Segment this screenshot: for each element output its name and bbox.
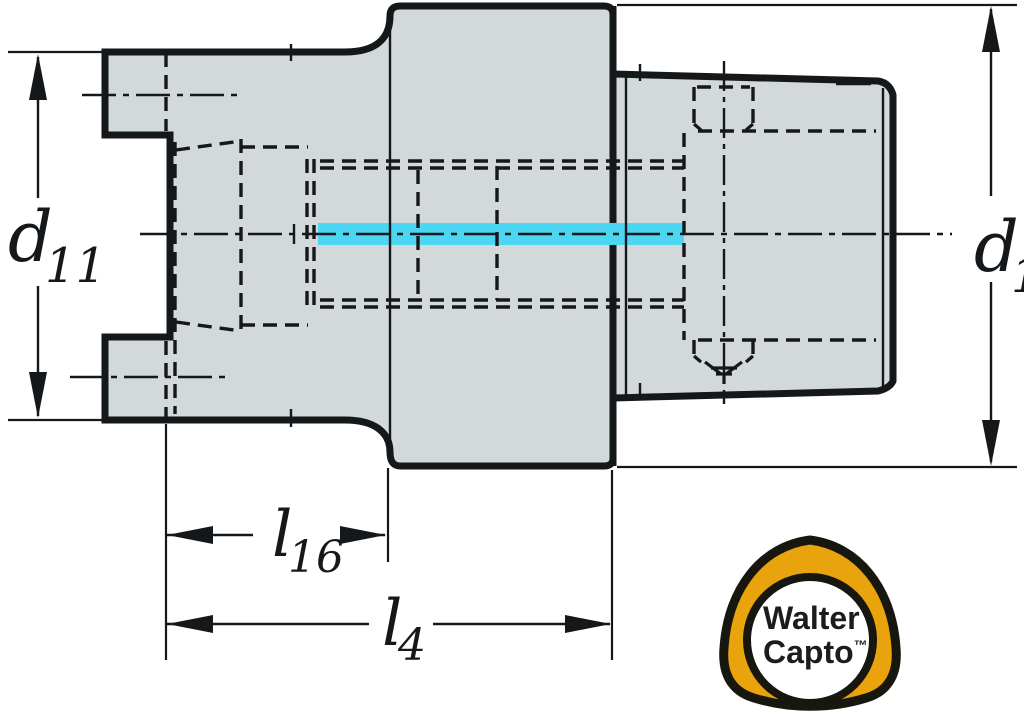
dimension-label-l4: l4 bbox=[382, 587, 426, 671]
l16-arrow-left bbox=[167, 526, 213, 544]
dimension-label-d1: d1 bbox=[974, 206, 1024, 304]
d1-arrow-up bbox=[982, 6, 1000, 52]
l16-arrow-right bbox=[340, 526, 386, 544]
dimension-label-d11: d11 bbox=[8, 196, 106, 294]
l4-arrow-right bbox=[565, 615, 611, 633]
d11-arrow-down bbox=[29, 372, 47, 418]
dimension-l4: l4 bbox=[167, 470, 612, 671]
technical-drawing-page: d11 d1 l16 l4 bbox=[0, 0, 1024, 724]
d11-arrow-up bbox=[29, 54, 47, 100]
l4-arrow-left bbox=[167, 615, 213, 633]
logo-text-line2: Capto™ bbox=[763, 634, 868, 670]
logo-text-line1: Walter bbox=[763, 600, 860, 636]
dimension-d11: d11 bbox=[8, 52, 106, 420]
dimension-label-l16: l16 bbox=[272, 498, 344, 583]
tool-adapter-drawing: d11 d1 l16 l4 bbox=[0, 0, 1024, 724]
walter-capto-logo: Walter Capto™ bbox=[724, 540, 897, 706]
d1-arrow-down bbox=[982, 420, 1000, 466]
trademark-symbol: ™ bbox=[854, 637, 868, 653]
